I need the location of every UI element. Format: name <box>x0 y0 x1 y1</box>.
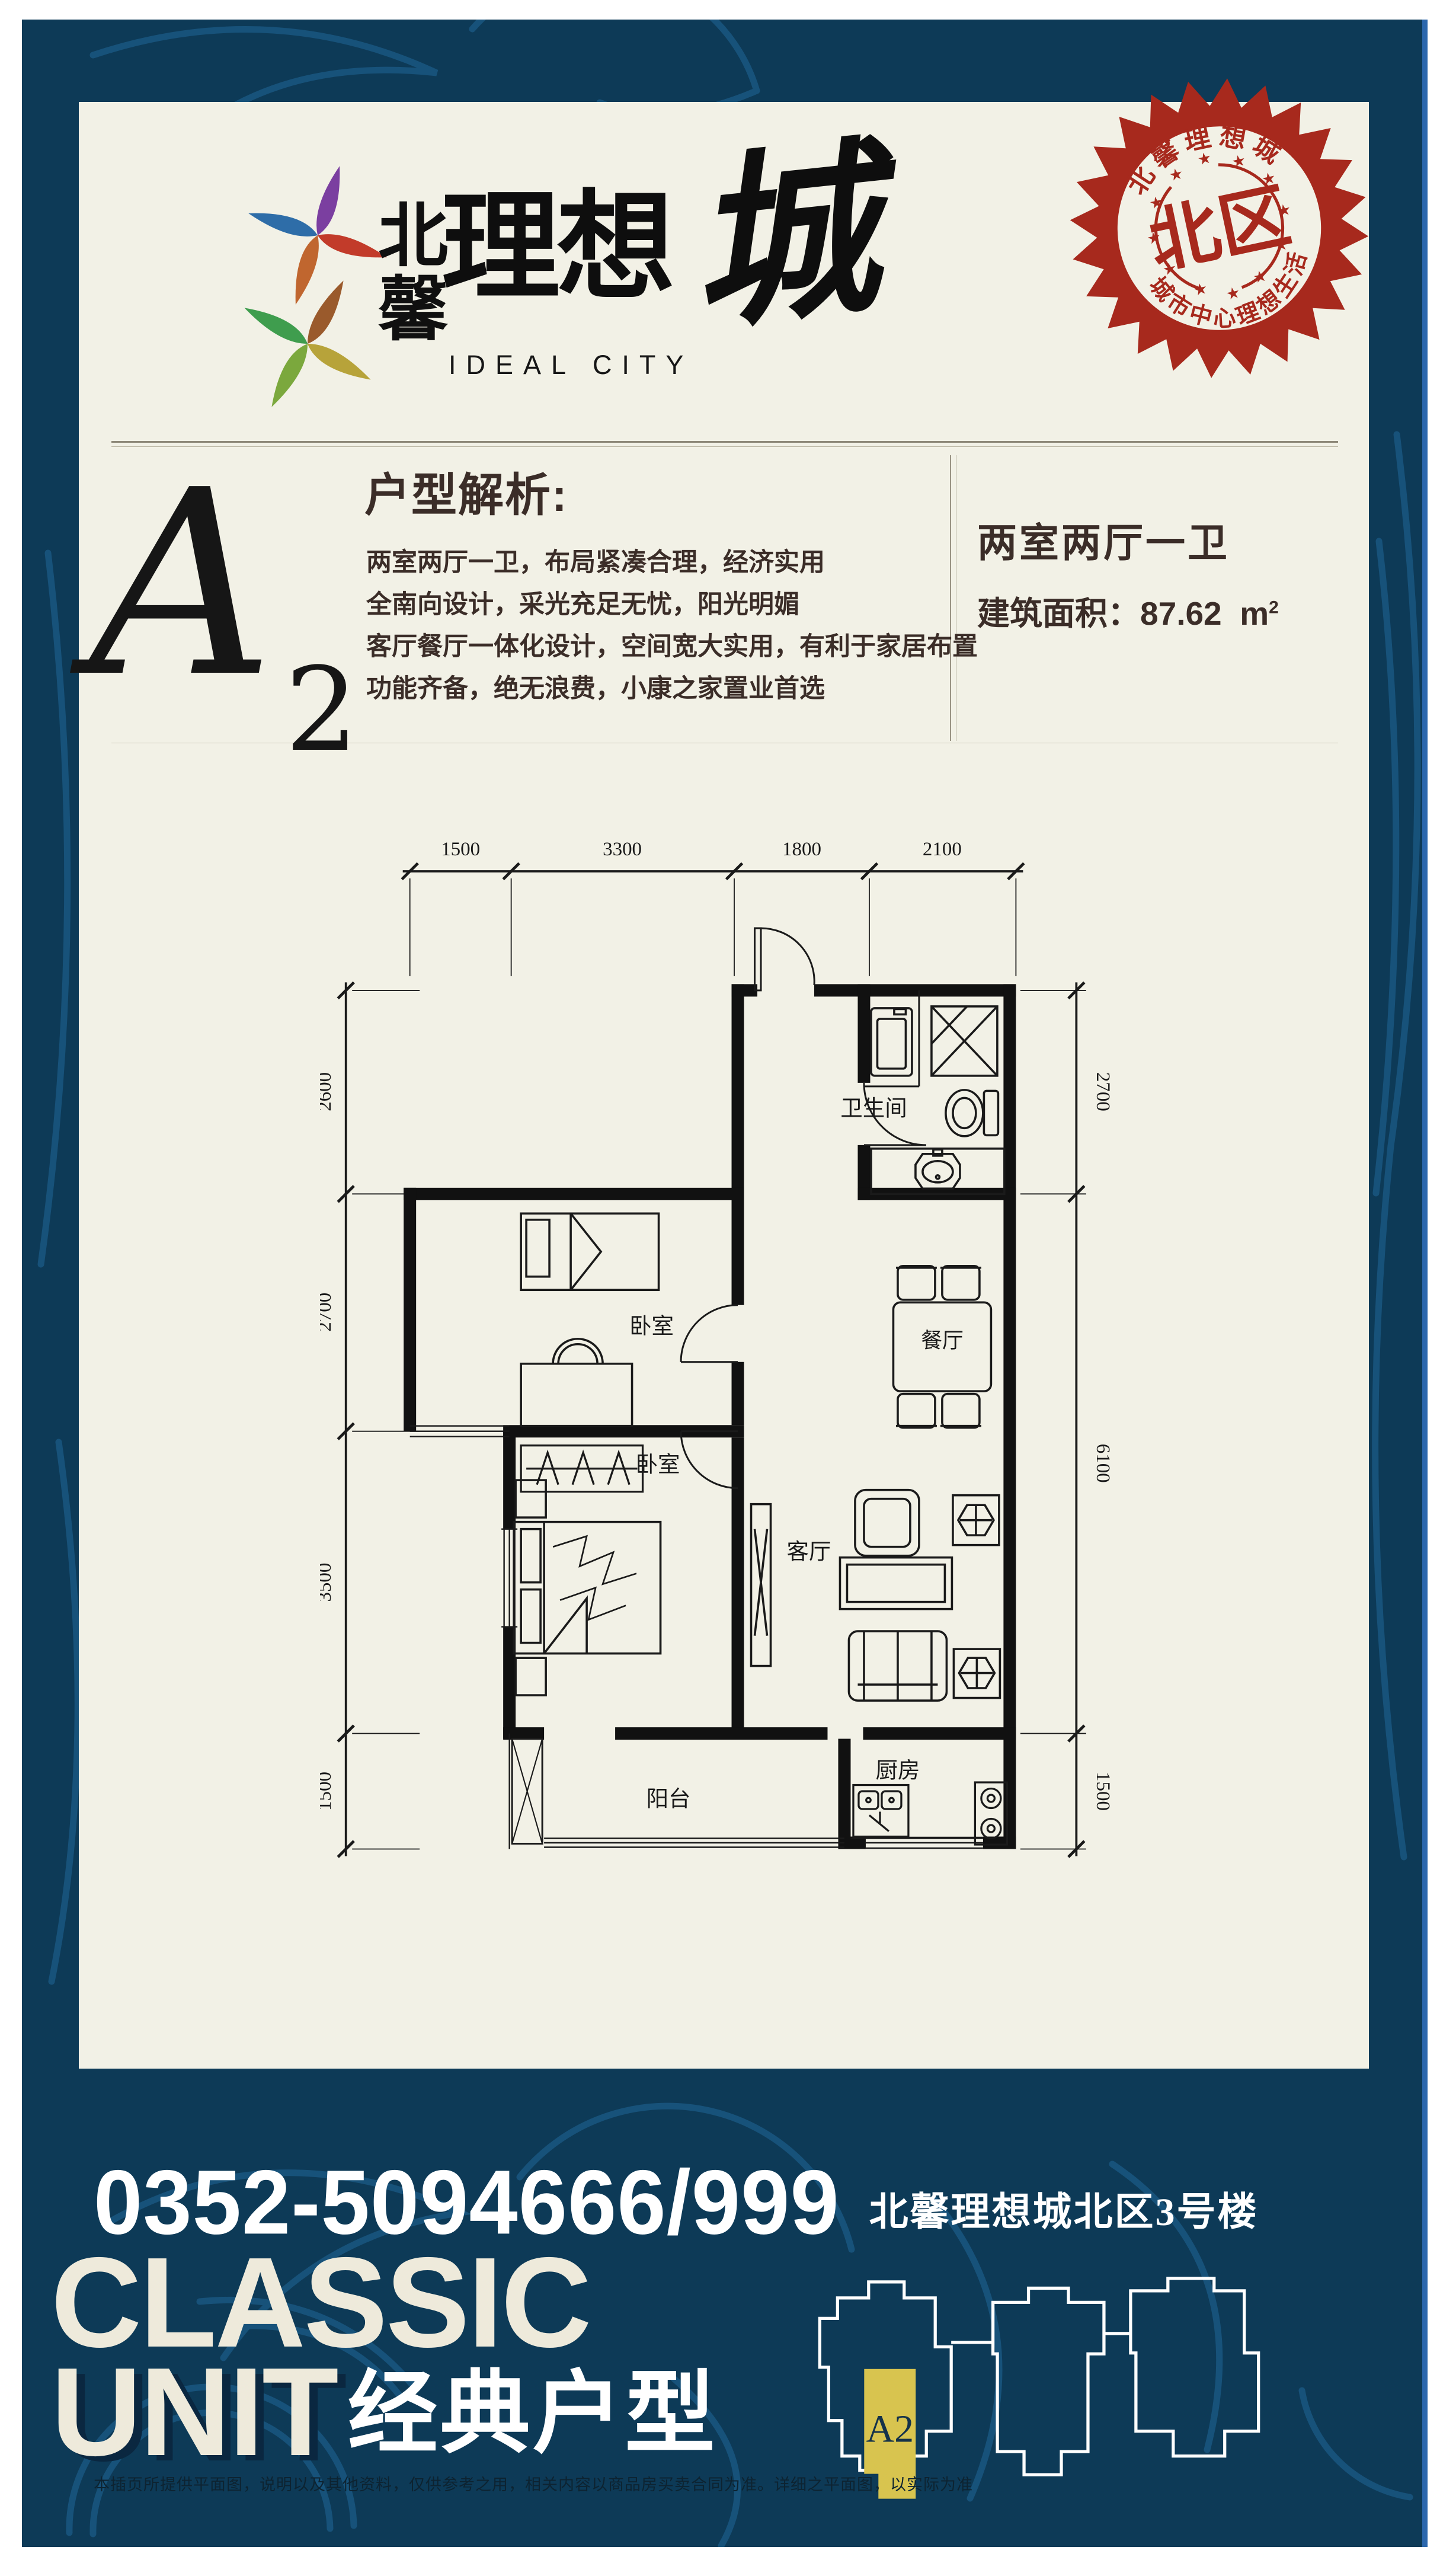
svg-text:3500: 3500 <box>320 1563 335 1602</box>
tower-3-outline <box>1131 2278 1259 2456</box>
unit-letter-a: A <box>89 456 274 712</box>
coffee-table-icon <box>840 1558 952 1609</box>
unit-number-2: 2 <box>285 652 359 768</box>
logo-cn-char-bei: 北 <box>378 202 448 271</box>
analysis-line: 两室两厅一卫，布局紧凑合理，经济实用 <box>366 542 978 584</box>
doors <box>681 928 926 1488</box>
svg-text:1800: 1800 <box>782 839 821 860</box>
room-label-dining: 餐厅 <box>921 1329 964 1353</box>
svg-text:2100: 2100 <box>923 839 962 860</box>
armchair-icon <box>855 1490 919 1556</box>
stove-icon <box>975 1782 1007 1845</box>
analysis-line: 全南向设计，采光充足无忧，阳光明媚 <box>366 584 978 626</box>
unit-word: UNIT <box>51 2342 337 2481</box>
poster-page: 北 馨 理想 城 IDEAL CITY 北馨理想城 城市中心理想生活 北区 <box>0 0 1456 2576</box>
shower-icon <box>932 1006 997 1076</box>
svg-text:6100: 6100 <box>1092 1444 1113 1483</box>
section-rule-top <box>111 441 1338 443</box>
bedroom2-furniture <box>514 1480 660 1695</box>
built-area-value: 87.62 <box>1140 595 1222 632</box>
built-area: 建筑面积：87.62 m2 <box>977 587 1279 634</box>
walls <box>404 984 1016 1849</box>
classic-unit-chinese: 经典户型 <box>348 2369 718 2459</box>
logo-main-chars: 理想 <box>441 188 671 307</box>
nightstand-icon <box>516 1658 546 1695</box>
tower-2-outline <box>993 2288 1104 2475</box>
unit-layout-summary: 两室两厅一卫 <box>977 511 1230 568</box>
logo-calligraphy-cheng: 城 <box>681 138 886 343</box>
room-label-kitchen: 厨房 <box>875 1759 920 1784</box>
svg-text:2600: 2600 <box>320 1072 335 1111</box>
svg-text:2700: 2700 <box>320 1293 335 1332</box>
floor-plan: 1500 3300 1800 2100 2600 2700 3500 1500 … <box>320 818 1244 1862</box>
svg-text:1500: 1500 <box>1092 1772 1113 1811</box>
key-unit-label: A2 <box>866 2408 914 2451</box>
north-district-stamp-icon: 北馨理想城 城市中心理想生活 北区 ★★★ ★★★ ★★★ ★★★ <box>1070 71 1369 385</box>
room-label-living: 客厅 <box>787 1540 831 1565</box>
room-labels: 卫生间 卧室 餐厅 卧室 客厅 阳台 厨房 <box>629 1097 964 1811</box>
svg-text:3300: 3300 <box>603 839 642 860</box>
svg-text:1500: 1500 <box>320 1772 335 1811</box>
kitchen-fixtures <box>850 1782 1007 1845</box>
svg-text:2700: 2700 <box>1092 1072 1113 1111</box>
room-label-bedroom1: 卧室 <box>629 1314 674 1339</box>
logo-latin-ideal-city: IDEAL CITY <box>449 350 693 381</box>
analysis-lines: 两室两厅一卫，布局紧凑合理，经济实用 全南向设计，采光充足无忧，阳光明媚 客厅餐… <box>366 542 978 710</box>
desk-chair-icon <box>521 1339 632 1426</box>
analysis-heading: 户型解析: <box>364 459 568 525</box>
svg-text:1500: 1500 <box>441 839 480 860</box>
sink-icon <box>871 1149 1004 1194</box>
sofa-icon <box>849 1631 946 1701</box>
bathroom-fixtures <box>864 990 1004 1194</box>
room-label-bedroom2: 卧室 <box>636 1453 680 1478</box>
analysis-line: 功能齐备，绝无浪费，小康之家置业首选 <box>366 668 978 710</box>
living-furniture <box>751 1490 1000 1701</box>
entry-door-arc <box>761 928 814 985</box>
unit-row: UNIT经典户型 <box>51 2342 718 2481</box>
plant-table-icon <box>953 1495 999 1545</box>
kitchen-sink-icon <box>853 1785 908 1837</box>
building-key-plan: A2 <box>811 2236 1308 2544</box>
washing-machine-icon <box>871 1008 912 1076</box>
analysis-line: 客厅餐厅一体化设计，空间宽大实用，有利于家居布置 <box>366 626 978 668</box>
single-bed-icon <box>521 1213 658 1290</box>
cream-card: 北 馨 理想 城 IDEAL CITY 北馨理想城 城市中心理想生活 北区 <box>79 102 1369 2069</box>
logo-cn-char-xin: 馨 <box>378 275 448 345</box>
wardrobe-icon <box>521 1446 642 1492</box>
bedroom2-door <box>681 1431 738 1488</box>
room-label-balcony: 阳台 <box>647 1787 691 1812</box>
dimension-lines <box>338 863 1086 1857</box>
bedroom1-door <box>681 1305 738 1362</box>
entry-door-leaf <box>755 928 761 990</box>
building-title: 北馨理想城北区3号楼 <box>817 2180 1311 2237</box>
section-rule-top-light <box>111 446 1338 447</box>
disclaimer-text: 本插页所提供平面图，说明以及其他资料，仅供参考之用，相关内容以商品房买卖合同为准… <box>94 2472 973 2495</box>
double-bed-icon <box>514 1522 660 1654</box>
tv-cabinet-icon <box>751 1504 771 1666</box>
built-area-unit: m2 <box>1240 595 1279 632</box>
room-label-bathroom: 卫生间 <box>840 1097 907 1121</box>
balcony-planter-icon <box>512 1739 542 1844</box>
built-area-label: 建筑面积： <box>977 595 1140 632</box>
plant-table2-icon <box>953 1649 1000 1698</box>
toilet-icon <box>946 1090 998 1136</box>
